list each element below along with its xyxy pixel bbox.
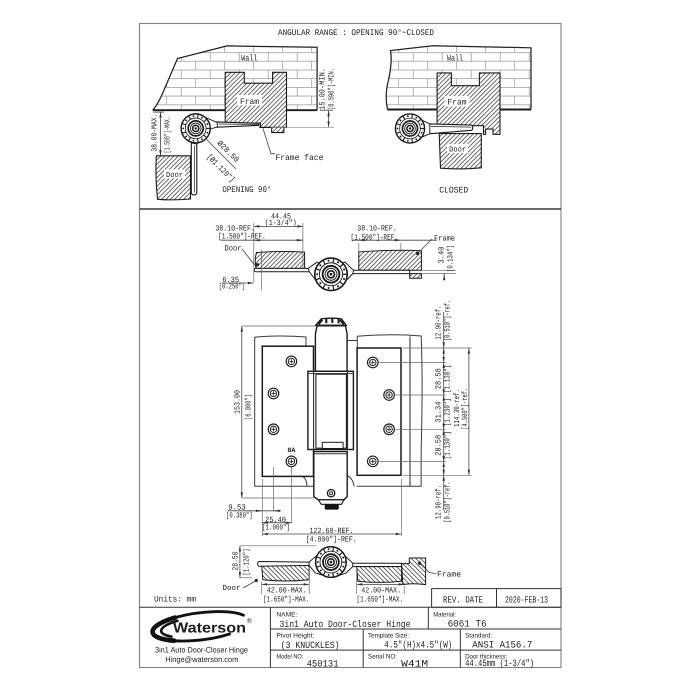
- svg-text:28.58: 28.58: [435, 435, 444, 456]
- svg-text:Frame: Frame: [434, 234, 455, 243]
- svg-text:[0.250"]: [0.250"]: [219, 283, 246, 292]
- svg-text:ANSI A156.7: ANSI A156.7: [472, 640, 532, 651]
- svg-text:42.00-MAX.: 42.00-MAX.: [267, 587, 307, 596]
- svg-text:Wall: Wall: [241, 54, 257, 64]
- svg-text:[0.590"]-MIN.: [0.590"]-MIN.: [328, 68, 337, 110]
- svg-text:[1.130"]: [1.130"]: [443, 365, 452, 393]
- svg-text:38.10-REF.: 38.10-REF.: [357, 225, 397, 234]
- svg-text:Frame face: Frame face: [275, 153, 323, 163]
- svg-text:3.40: 3.40: [437, 246, 446, 263]
- svg-text:Door: Door: [223, 584, 241, 593]
- svg-text:153.00: 153.00: [234, 390, 243, 414]
- svg-text:Fram: Fram: [448, 98, 467, 108]
- svg-text:[1.120"]: [1.120"]: [242, 549, 251, 576]
- svg-text:12.90-ref.: 12.90-ref.: [435, 485, 444, 519]
- svg-text:CLOSED: CLOSED: [439, 186, 468, 196]
- svg-text:Door: Door: [449, 146, 466, 154]
- svg-text:[1.130"]: [1.130"]: [443, 431, 452, 459]
- svg-text:W41M: W41M: [401, 659, 428, 670]
- svg-text:Standard:: Standard:: [465, 632, 492, 639]
- svg-text:Pivot Height:: Pivot Height:: [276, 632, 314, 639]
- svg-text:3in1 Auto Door-Closer Hinge: 3in1 Auto Door-Closer Hinge: [155, 645, 248, 654]
- svg-text:[1.500"]-REF.: [1.500"]-REF.: [351, 233, 399, 242]
- svg-text:[6.000"]: [6.000"]: [244, 394, 253, 420]
- svg-text:OPENING 90°: OPENING 90°: [222, 185, 271, 195]
- svg-text:[0.510"]-ref.: [0.510"]-ref.: [443, 482, 452, 523]
- svg-text:[1.500"]-MAX.: [1.500"]-MAX.: [164, 116, 173, 153]
- svg-text:NAME:: NAME:: [276, 611, 297, 618]
- svg-text:ANGULAR RANGE : OPENING 90°~CL: ANGULAR RANGE : OPENING 90°~CLOSED: [278, 28, 434, 38]
- svg-text:450131: 450131: [307, 659, 339, 670]
- svg-text:28.58: 28.58: [435, 368, 444, 389]
- svg-text:31.34: 31.34: [435, 401, 444, 422]
- svg-text:122.60-REF.: 122.60-REF.: [310, 527, 354, 536]
- svg-text:4.5"(H)x4.5"(W): 4.5"(H)x4.5"(W): [384, 640, 452, 651]
- svg-text:®: ®: [247, 618, 253, 625]
- svg-text:28.50: 28.50: [232, 551, 241, 570]
- svg-text:42.00-MAX.: 42.00-MAX.: [361, 587, 401, 596]
- svg-text:Door: Door: [225, 245, 242, 254]
- svg-text:[1.000"]: [1.000"]: [262, 523, 290, 532]
- svg-text:Fram: Fram: [240, 97, 259, 107]
- svg-text:(3 KNUCKLES): (3 KNUCKLES): [281, 640, 340, 651]
- svg-text:Door: Door: [166, 172, 183, 180]
- svg-text:Frame: Frame: [437, 571, 461, 580]
- svg-text:[4.800"]-REF.: [4.800"]-REF.: [306, 536, 357, 545]
- svg-text:[0.510"]-ref.: [0.510"]-ref.: [443, 300, 452, 341]
- svg-text:Serial NO:: Serial NO:: [368, 654, 397, 661]
- svg-text:38.00-MAX.: 38.00-MAX.: [151, 114, 160, 152]
- svg-text:Model NO:: Model NO:: [276, 654, 303, 661]
- svg-text:6061 T6: 6061 T6: [448, 619, 487, 630]
- svg-text:Units: mm: Units: mm: [154, 595, 196, 605]
- svg-text:[1.650"]-MAX.: [1.650"]-MAX.: [263, 595, 310, 604]
- svg-text:15.00-MIN.: 15.00-MIN.: [318, 68, 327, 110]
- svg-text:8A: 8A: [287, 447, 295, 454]
- svg-text:3in1 Auto Door-Closer Hinge: 3in1 Auto Door-Closer Hinge: [280, 619, 411, 630]
- svg-text:Material:: Material:: [433, 611, 456, 618]
- svg-text:Hinge@waterson.com: Hinge@waterson.com: [165, 655, 238, 664]
- svg-text:Template Size:: Template Size:: [368, 632, 409, 639]
- svg-text:[4.500"]-ref.: [4.500"]-ref.: [461, 388, 470, 430]
- svg-text:[1.650"]-MAX.: [1.650"]-MAX.: [357, 595, 404, 604]
- svg-text:12.90-ref.: 12.90-ref.: [435, 306, 444, 340]
- svg-text:[1.230"]: [1.230"]: [443, 398, 452, 426]
- svg-text:Waterson: Waterson: [173, 621, 246, 637]
- svg-text:44.45mm (1-3/4"): 44.45mm (1-3/4"): [465, 658, 534, 669]
- svg-text:REV. DATE: REV. DATE: [443, 595, 483, 606]
- svg-text:[0.134"]: [0.134"]: [447, 245, 456, 272]
- svg-text:2020-FEB-13: 2020-FEB-13: [505, 595, 548, 606]
- svg-text:Wall: Wall: [447, 54, 463, 64]
- svg-text:[0.380"]: [0.380"]: [226, 511, 253, 520]
